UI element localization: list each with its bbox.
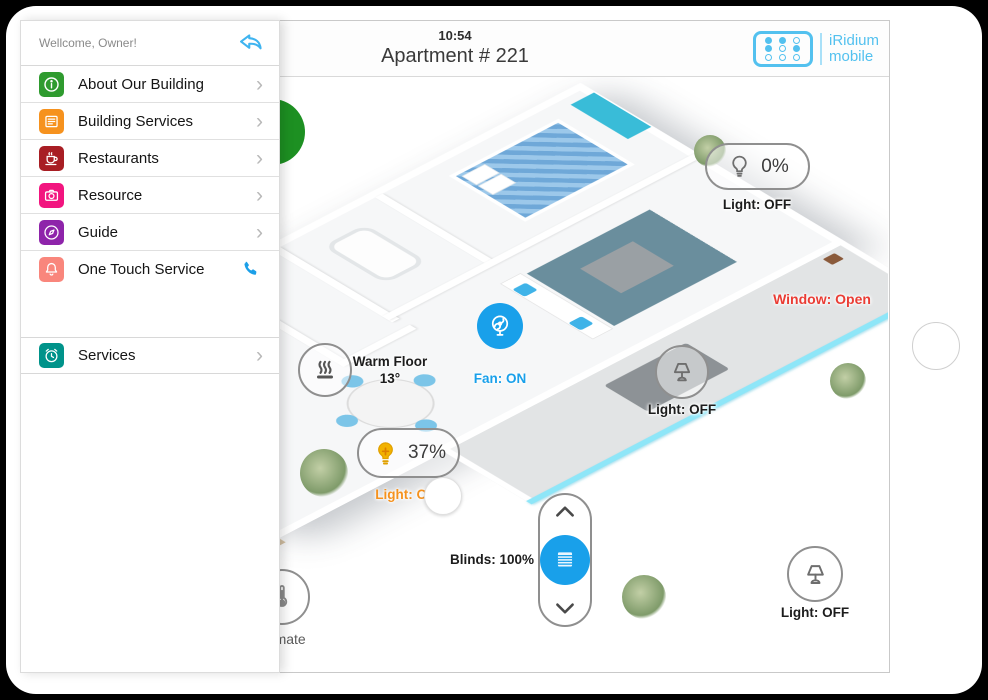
bedroom-light-value: 0% <box>761 156 788 178</box>
form-list-icon <box>39 109 64 134</box>
sidebar-item-guide[interactable]: Guide › <box>21 214 279 251</box>
sidebar-item-label: Resource <box>78 187 256 204</box>
sidebar-item-one-touch-service[interactable]: One Touch Service <box>21 251 279 288</box>
sidebar-item-label: One Touch Service <box>78 261 240 278</box>
phone-icon[interactable] <box>240 259 261 280</box>
living-light-control[interactable] <box>655 345 709 399</box>
coffee-cup-icon <box>39 146 64 171</box>
chevron-right-icon: › <box>256 222 263 243</box>
blinds-down-button[interactable] <box>552 601 578 617</box>
dining-light-control[interactable]: 37% <box>357 428 460 478</box>
blinds-up-button[interactable] <box>552 503 578 519</box>
table-lamp-icon <box>667 357 697 387</box>
home-button[interactable] <box>912 322 960 370</box>
plant <box>830 363 866 399</box>
warm-floor-control[interactable] <box>298 343 352 397</box>
chevron-right-icon: › <box>256 148 263 169</box>
camera-icon <box>39 183 64 208</box>
chevron-right-icon: › <box>256 185 263 206</box>
chevron-right-icon: › <box>256 111 263 132</box>
compass-icon <box>39 220 64 245</box>
heat-waves-icon <box>310 355 340 385</box>
sidebar-item-label: Guide <box>78 224 256 241</box>
bedroom-light-control[interactable]: 0% <box>705 143 810 190</box>
sidebar-item-resource[interactable]: Resource › <box>21 177 279 214</box>
dining-light-knob[interactable] <box>424 477 462 515</box>
dining-light-value: 37% <box>408 442 446 464</box>
sidebar-item-services[interactable]: Services › <box>21 337 279 374</box>
chevron-right-icon: › <box>256 74 263 95</box>
terrace-light-status: Light: OFF <box>781 605 849 620</box>
bell-icon <box>39 257 64 282</box>
wall-art <box>571 93 652 140</box>
sidebar-item-restaurants[interactable]: Restaurants › <box>21 140 279 177</box>
sidebar-item-label: About Our Building <box>78 76 256 93</box>
greeting-text: Wellcome, Owner! <box>39 36 137 50</box>
bathtub <box>323 224 428 284</box>
sidebar-item-label: Restaurants <box>78 150 256 167</box>
brand-name: iRidium mobile <box>820 33 879 65</box>
bedroom-light-status: Light: OFF <box>723 197 791 212</box>
fan-icon <box>486 312 514 340</box>
sidebar-item-building-services[interactable]: Building Services › <box>21 103 279 140</box>
fan-button[interactable] <box>477 303 523 349</box>
plant <box>300 449 348 497</box>
blinds-icon <box>552 547 578 573</box>
iridium-logo: iRidium mobile <box>753 31 879 67</box>
warm-floor-label: Warm Floor 13° <box>350 354 430 388</box>
fan-status: Fan: ON <box>474 371 527 386</box>
sidebar-item-label: Services <box>78 347 256 364</box>
sidebar-header: Wellcome, Owner! <box>21 21 279 66</box>
terrace-light-control[interactable] <box>787 546 843 602</box>
bulb-icon <box>726 153 753 180</box>
alarm-clock-icon <box>39 343 64 368</box>
blinds-button[interactable] <box>540 535 590 585</box>
sidebar-item-about-our-building[interactable]: About Our Building › <box>21 66 279 103</box>
living-light-status: Light: OFF <box>648 402 716 417</box>
sidebar-menu: Wellcome, Owner! About Our Building › Bu… <box>20 20 280 673</box>
device-frame: 10:54 Apartment # 221 iRidium mobile <box>0 0 988 700</box>
sidebar-spacer <box>21 288 279 337</box>
chevron-right-icon: › <box>256 345 263 366</box>
window-status: Window: Open <box>773 291 871 307</box>
blinds-status: Blinds: 100% <box>450 552 534 567</box>
dots-grid-icon <box>753 31 813 67</box>
bulb-on-icon <box>371 439 400 468</box>
table-lamp-icon <box>800 559 831 590</box>
plant <box>622 575 666 619</box>
sidebar-item-label: Building Services <box>78 113 256 130</box>
reply-arrow-icon[interactable] <box>237 31 265 55</box>
blinds-control <box>538 493 592 627</box>
info-icon <box>39 72 64 97</box>
